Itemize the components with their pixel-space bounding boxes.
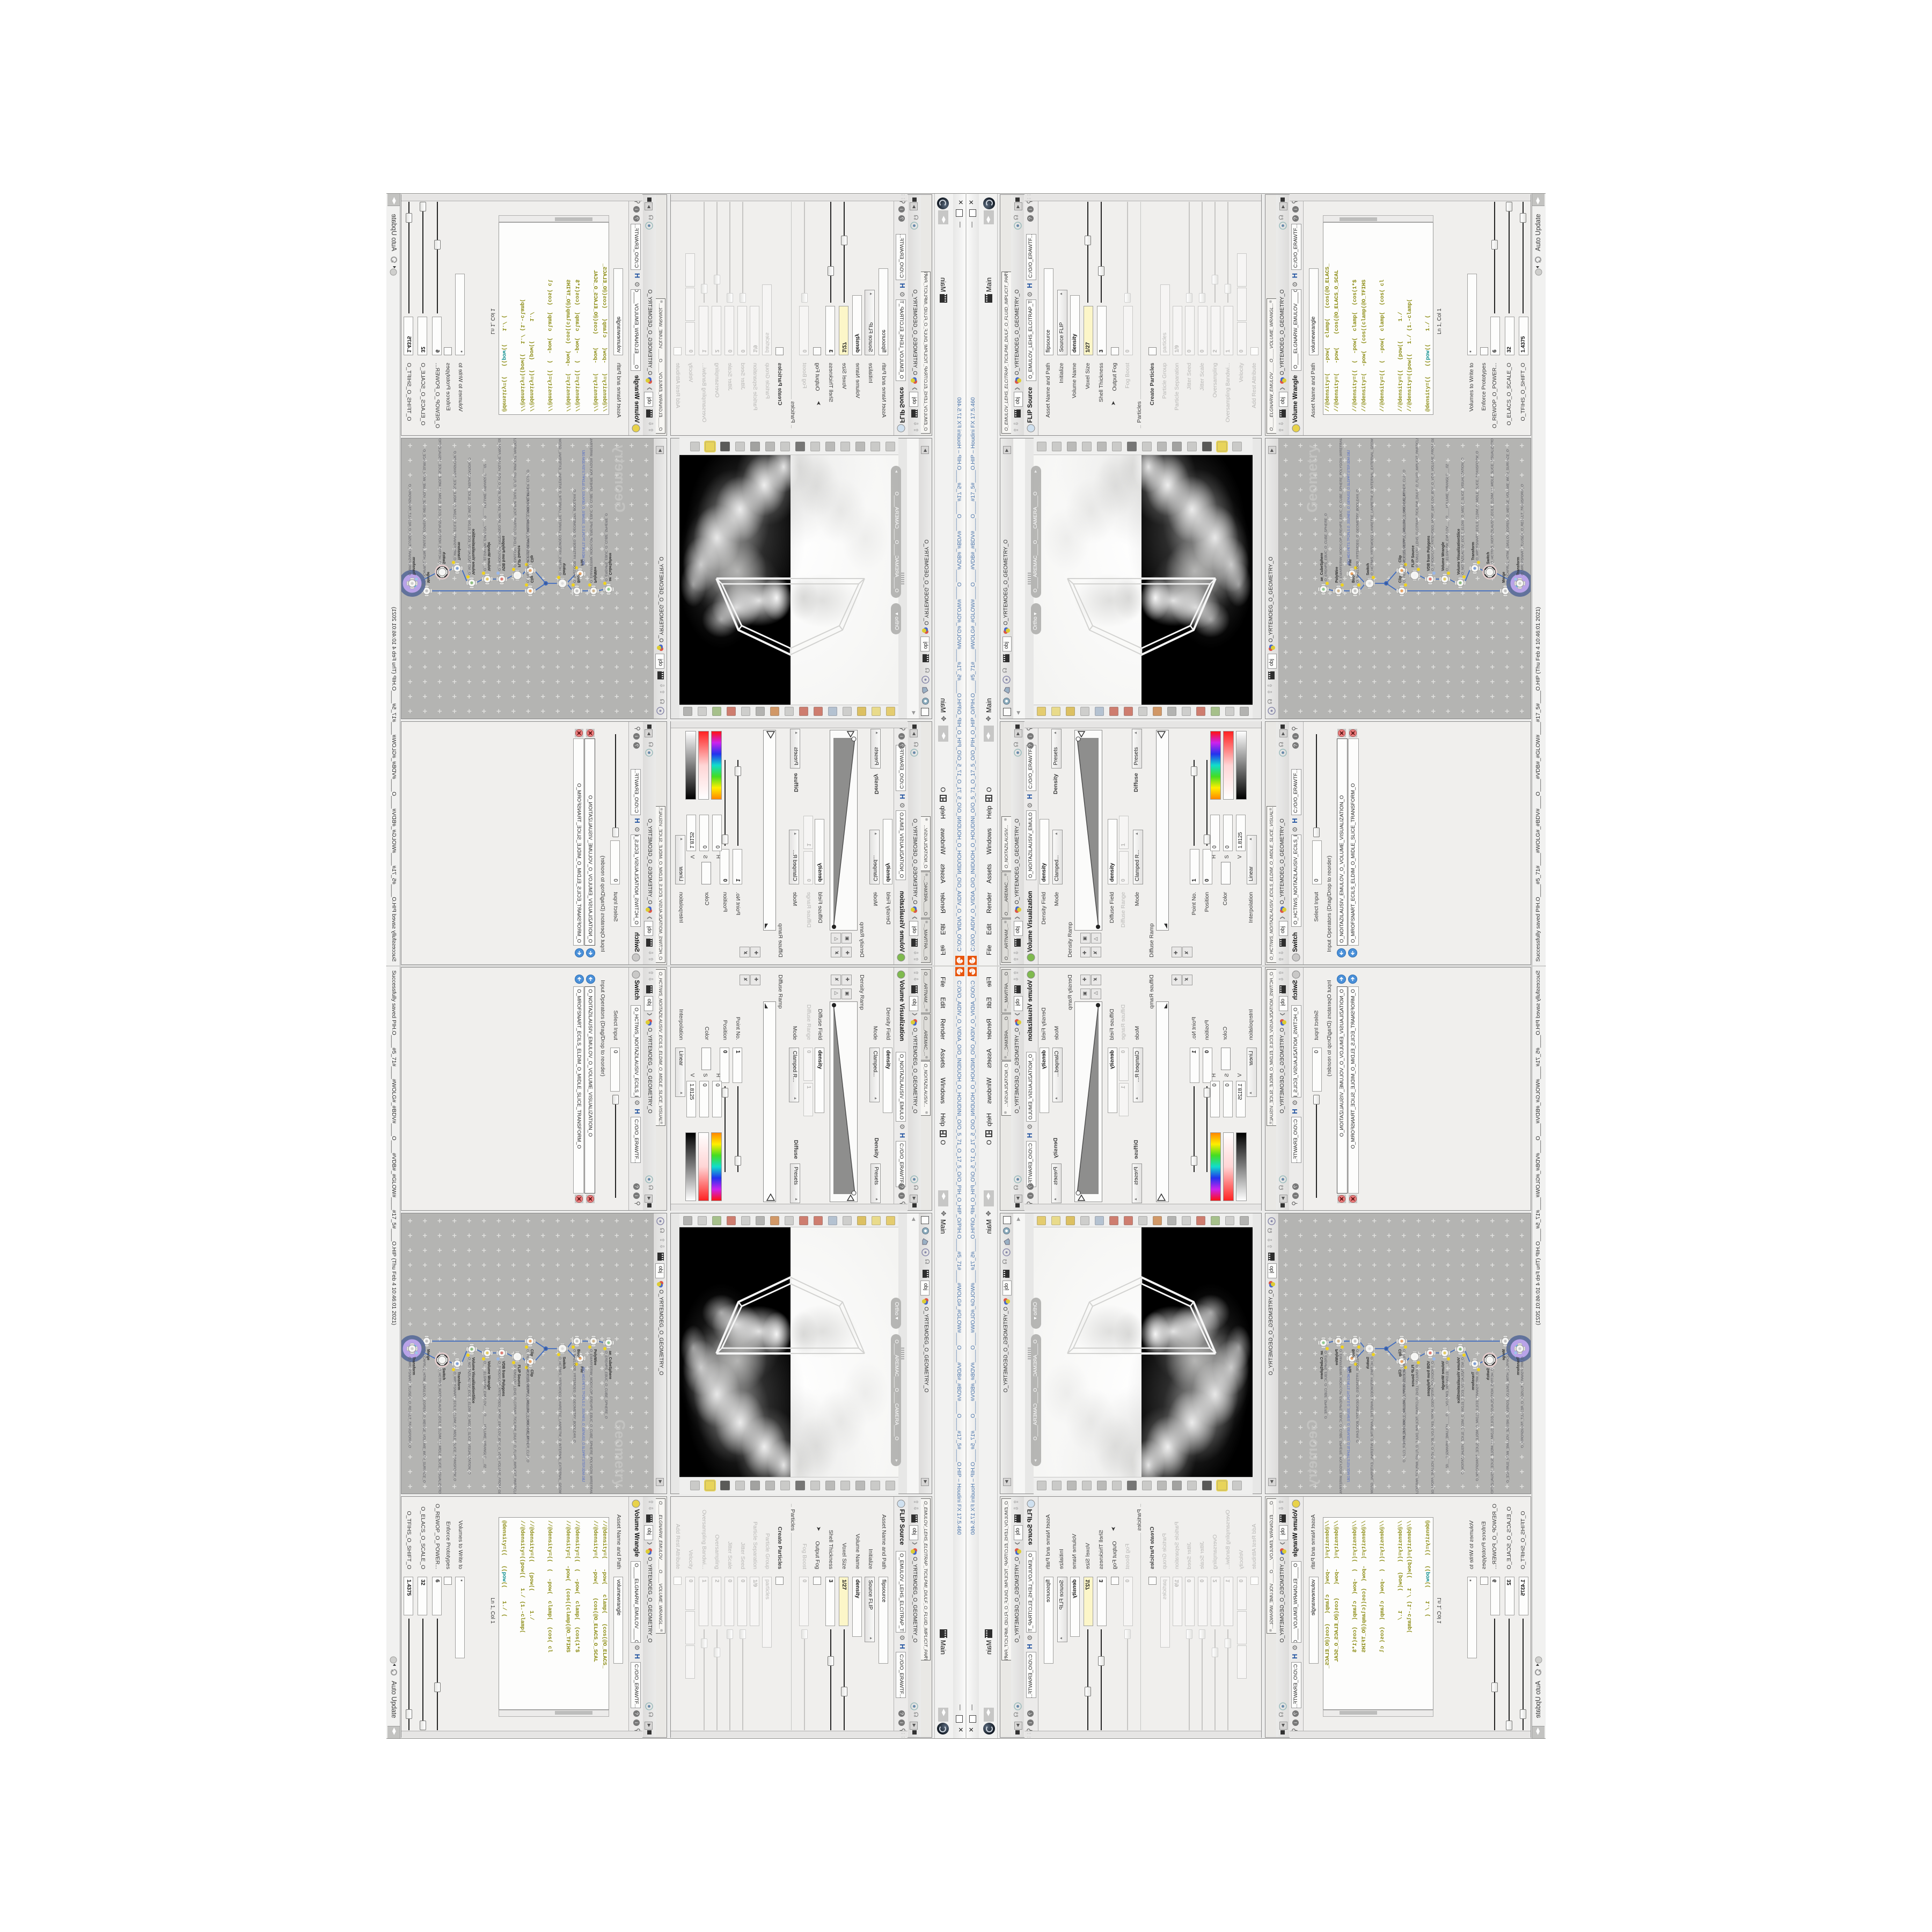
svg-text:O_EREHPS_EBUC_O_CUBE_SPHERE_O: O_EREHPS_EBUC_O_CUBE_SPHERE_O [604,1351,608,1418]
svg-text:O_HCTIWS_NOITAZILAUSIV_ECILS_E: O_HCTIWS_NOITAZILAUSIV_ECILS_ELDIM_O_MID… [438,1368,442,1494]
svg-text:i: i [634,1722,639,1723]
svg-text:FLIP Source: FLIP Source [1411,1365,1415,1387]
svg-text:?: ? [634,217,639,219]
svg-text:FLIP Source: FLIP Source [517,1365,521,1387]
svg-text:PolyWire: PolyWire [593,1349,597,1365]
svg-text:?: ? [899,1712,904,1715]
svg-text:i: i [634,1195,639,1196]
svg-text:O_PILC_REWOL_EMULOV_O_VOLUME_L: O_PILC_REWOL_EMULOV_O_VOLUME_LOWER_CLIP_… [1403,488,1407,583]
svg-text:O_SNOGYLOP_YRTEMOEG_MORF_EMULO: O_SNOGYLOP_YRTEMOEG_MORF_EMULOV_BDV_O_VD… [1431,438,1435,571]
svg-text:?: ? [1028,1185,1033,1188]
svg-text:O_NOITAZILAUSIV_ECILS_ELDIM_O_: O_NOITAZILAUSIV_ECILS_ELDIM_O_MIDLE_SLIC… [467,1357,471,1474]
svg-text:O_EMULOV_LEHS_ELCITRAP_TICILPM: O_EMULOV_LEHS_ELCITRAP_TICILPMI_DIULF_O_… [513,1365,517,1494]
svg-text:O____ELGNARW_EMULOV____O____VO: O____ELGNARW_EMULOV____O____VOLUME_WRANG… [483,1361,487,1468]
svg-text:O_NOITAZILAUSIV_ECILS_ELDIM_O_: O_NOITAZILAUSIV_ECILS_ELDIM_O_MIDLE_SLIC… [1461,458,1465,575]
svg-text:ae_CubeSphere: ae_CubeSphere [1320,1351,1324,1379]
svg-text:O____ELGNARW_EMULOV____O____VO: O____ELGNARW_EMULOV____O____VOLUME_WRANG… [483,464,487,571]
svg-text:Transform: Transform [457,1372,460,1390]
svg-text:?: ? [1293,1712,1298,1715]
svg-text:Volume VisualizationSlice: Volume VisualizationSlice [1457,1357,1461,1403]
svg-text:O_EMARFERIW_NOGYLOP_EREHPS_EBU: O_EMARFERIW_NOGYLOP_EREHPS_EBUC_O_CUBE_S… [1340,438,1343,583]
svg-text:i: i [899,209,904,210]
svg-text:JBO.MD3.PETS.TFCPLS.O_3SUNEG_O: JBO.MD3.PETS.TFCPLS.O_3SUNEG_O_GENUS3_O.… [581,450,584,566]
svg-text:Bool: Bool [1352,1349,1356,1358]
svg-text:O_EREHPS_EBUC_O_CUBE_SPHERE_O: O_EREHPS_EBUC_O_CUBE_SPHERE_O [1324,1351,1328,1418]
svg-text:Bool: Bool [576,1349,580,1358]
svg-text:O_ECAFRUS_HTIW_EMULOV_EGREM_O_: O_ECAFRUS_HTIW_EMULOV_EGREM_O_MERGE_VOLU… [1506,449,1510,583]
svg-text:Clip: Clip [1399,576,1402,583]
svg-text:Bool: Bool [1352,574,1356,583]
svg-text:O____ELGNARW_EMULOV____O____VO: O____ELGNARW_EMULOV____O____VOLUME_WRANG… [1446,464,1450,571]
svg-text:O_HCTIWS_YRTEMOEG_LANRETXE_LAN: O_HCTIWS_YRTEMOEG_LANRETXE_LANRETNI_O_IN… [1371,438,1374,575]
svg-text:i: i [899,1195,904,1196]
svg-text:O_ECAFRUS_HTIW_EMULOV_EGREM_O_: O_ECAFRUS_HTIW_EMULOV_EGREM_O_MERGE_VOLU… [422,449,426,583]
svg-text:O_NOITAZILAUSIV_ECILS_ELDIM_O_: O_NOITAZILAUSIV_ECILS_ELDIM_O_MIDLE_SLIC… [1461,1357,1465,1474]
svg-text:O_MROFSNART_TLUSER_O_RESULT_TR: O_MROFSNART_TLUSER_O_RESULT_TRANSFORM_O [1521,484,1525,575]
svg-text:O_MROFSNART_ECILS_ELDIM_O_MIDL: O_MROFSNART_ECILS_ELDIM_O_MIDLE_SLICE_TR… [453,451,457,560]
svg-text:O_EMARFERIW_NOGYLOP_EREHPS_EBU: O_EMARFERIW_NOGYLOP_EREHPS_EBUC_O_CUBE_S… [1340,1349,1343,1494]
svg-text:?: ? [899,217,904,219]
svg-text:O_MROFSNART_ECILS_ELDIM_O_MIDL: O_MROFSNART_ECILS_ELDIM_O_MIDLE_SLICE_TR… [1476,1372,1480,1481]
svg-text:VDB from Polygons: VDB from Polygons [501,536,505,571]
svg-text:Switch: Switch [442,552,445,564]
svg-text:VDB from Polygons: VDB from Polygons [501,1361,505,1396]
svg-text:i: i [899,1722,904,1723]
svg-text:i: i [634,209,639,210]
svg-text:Clip: Clip [1399,1370,1402,1377]
svg-text:O_MROFSNART_TLUSER_O_RESULT_TR: O_MROFSNART_TLUSER_O_RESULT_TRANSFORM_O [408,1357,412,1448]
svg-text:O_PILC_REWOL_EMULOV_O_VOLUME_L: O_PILC_REWOL_EMULOV_O_VOLUME_LOWER_CLIP_… [526,1349,530,1444]
svg-text:Clip: Clip [1399,555,1402,562]
svg-text:?: ? [634,1185,639,1188]
svg-text:Merge: Merge [1502,1349,1506,1360]
svg-text:O_EREHPS_EBUC_O_CUBE_SPHERE_O: O_EREHPS_EBUC_O_CUBE_SPHERE_O [1324,514,1328,581]
svg-text:Transform: Transform [412,1357,415,1375]
svg-text:O_NAELOOB_YRTEMOEG_O_GEOMETRY_: O_NAELOOB_YRTEMOEG_O_GEOMETRY_BOOLEAN_O [1356,489,1360,583]
svg-text:i: i [1293,209,1298,210]
svg-text:Bool: Bool [576,574,580,583]
svg-text:i: i [1293,1722,1298,1723]
svg-text:Transform: Transform [1472,542,1475,560]
svg-text:i: i [1293,736,1298,737]
svg-text:?: ? [1028,217,1033,219]
svg-text:i: i [899,736,904,737]
svg-text:O____ELGNARW_EMULOV____O____VO: O____ELGNARW_EMULOV____O____VOLUME_WRANG… [1446,1361,1450,1468]
svg-text:O_HCTIWS_NOITAZILAUSIV_ECILS_E: O_HCTIWS_NOITAZILAUSIV_ECILS_ELDIM_O_MID… [1491,1368,1495,1494]
svg-text:Clip: Clip [530,555,533,562]
svg-text:Switch: Switch [1366,563,1370,575]
svg-text:O_HCTIWS_YRTEMOEG_LANRETXE_LAN: O_HCTIWS_YRTEMOEG_LANRETXE_LANRETNI_O_IN… [558,438,562,575]
svg-text:O_HCTIWS_YRTEMOEG_LANRETXE_LAN: O_HCTIWS_YRTEMOEG_LANRETXE_LANRETNI_O_IN… [558,1357,562,1494]
svg-text:Transform: Transform [1517,557,1520,575]
svg-text:O_MROFSNART_TLUSER_O_RESULT_TR: O_MROFSNART_TLUSER_O_RESULT_TRANSFORM_O [1521,1357,1525,1448]
svg-text:Clip: Clip [530,1349,533,1356]
svg-text:O_NAELOOB_YRTEMOEG_O_GEOMETRY_: O_NAELOOB_YRTEMOEG_O_GEOMETRY_BOOLEAN_O [573,489,576,583]
svg-text:Switch: Switch [1487,552,1490,564]
svg-text:O_ECAFRUS_HTIW_EMULOV_EGREM_O_: O_ECAFRUS_HTIW_EMULOV_EGREM_O_MERGE_VOLU… [422,1349,426,1483]
svg-text:?: ? [899,744,904,747]
svg-text:Transform: Transform [412,557,415,575]
svg-text:Volume Wrangle: Volume Wrangle [1441,1361,1445,1390]
svg-text:Clip: Clip [530,576,533,583]
svg-text:JBO.MD3.PETS.TFCPLS.O_3SUNEG_O: JBO.MD3.PETS.TFCPLS.O_3SUNEG_O_GENUS3_O.… [1348,1366,1351,1482]
svg-text:O_EMULOV_LEHS_ELCITRAP_TICILPM: O_EMULOV_LEHS_ELCITRAP_TICILPMI_DIULF_O_… [1416,438,1419,567]
svg-text:O_PILC_REWOL_EMULOV_O_VOLUME_L: O_PILC_REWOL_EMULOV_O_VOLUME_LOWER_CLIP_… [526,488,530,583]
svg-text:O_NOITAZILAUSIV_ECILS_ELDIM_O_: O_NOITAZILAUSIV_ECILS_ELDIM_O_MIDLE_SLIC… [467,458,471,575]
svg-text:Clip: Clip [1399,1349,1402,1356]
svg-text:i: i [1293,1195,1298,1196]
svg-text:Transform: Transform [1517,1357,1520,1375]
svg-text:Switch: Switch [1487,1368,1490,1380]
svg-text:O_HCTIWS_YRTEMOEG_LANRETXE_LAN: O_HCTIWS_YRTEMOEG_LANRETXE_LANRETNI_O_IN… [1371,1357,1374,1494]
svg-text:O_MROFSNART_TLUSER_O_RESULT_TR: O_MROFSNART_TLUSER_O_RESULT_TRANSFORM_O [408,484,412,575]
svg-text:O_EMARFERIW_NOGYLOP_EREHPS_EBU: O_EMARFERIW_NOGYLOP_EREHPS_EBUC_O_CUBE_S… [589,1349,593,1494]
svg-text:i: i [1028,1722,1033,1723]
svg-text:O_HCTIWS_NOITAZILAUSIV_ECILS_E: O_HCTIWS_NOITAZILAUSIV_ECILS_ELDIM_O_MID… [438,438,442,564]
svg-text:i: i [634,736,639,737]
svg-text:ae_CubeSphere: ae_CubeSphere [608,1351,612,1379]
svg-text:Transform: Transform [457,542,460,560]
svg-text:O_ECAFRUS_HTIW_EMULOV_EGREM_O_: O_ECAFRUS_HTIW_EMULOV_EGREM_O_MERGE_VOLU… [1506,1349,1510,1483]
svg-text:Geometry: Geometry [1304,1419,1320,1487]
svg-text:O_SNOGYLOP_YRTEMOEG_MORF_EMULO: O_SNOGYLOP_YRTEMOEG_MORF_EMULOV_BDV_O_VD… [497,1361,501,1494]
svg-text:O_HCTIWS_NOITAZILAUSIV_ECILS_E: O_HCTIWS_NOITAZILAUSIV_ECILS_ELDIM_O_MID… [1491,438,1495,564]
svg-text:O_EMARFERIW_NOGYLOP_EREHPS_EBU: O_EMARFERIW_NOGYLOP_EREHPS_EBUC_O_CUBE_S… [589,438,593,583]
svg-text:Volume VisualizationSlice: Volume VisualizationSlice [1457,529,1461,575]
svg-text:VDB from Polygons: VDB from Polygons [1427,536,1431,571]
svg-text:?: ? [634,1712,639,1715]
svg-text:Volume Wrangle: Volume Wrangle [487,542,491,571]
svg-text:Merge: Merge [426,1349,430,1360]
svg-text:O_NAELOOB_YRTEMOEG_O_GEOMETRY_: O_NAELOOB_YRTEMOEG_O_GEOMETRY_BOOLEAN_O [1356,1349,1360,1443]
svg-text:?: ? [1293,1185,1298,1188]
svg-text:FLIP Source: FLIP Source [1411,545,1415,567]
svg-text:?: ? [1293,744,1298,747]
svg-text:?: ? [1028,744,1033,747]
svg-text:Volume Wrangle: Volume Wrangle [1441,542,1445,571]
svg-text:Volume VisualizationSlice: Volume VisualizationSlice [471,1357,475,1403]
svg-text:O_NAELOOB_YRTEMOEG_O_GEOMETRY_: O_NAELOOB_YRTEMOEG_O_GEOMETRY_BOOLEAN_O [573,1349,576,1443]
svg-text:Geometry: Geometry [612,445,628,513]
svg-text:PolyWire: PolyWire [1335,1349,1339,1365]
svg-text:Clip: Clip [530,1370,533,1377]
svg-text:O_MROFSNART_ECILS_ELDIM_O_MIDL: O_MROFSNART_ECILS_ELDIM_O_MIDLE_SLICE_TR… [453,1372,457,1481]
svg-text:Switch: Switch [562,1357,566,1369]
svg-text:O_EMULOV_LEHS_ELCITRAP_TICILPM: O_EMULOV_LEHS_ELCITRAP_TICILPMI_DIULF_O_… [513,438,517,567]
svg-text:i: i [1028,736,1033,737]
svg-text:O_SNOGYLOP_YRTEMOEG_MORF_EMULO: O_SNOGYLOP_YRTEMOEG_MORF_EMULOV_BDV_O_VD… [1431,1361,1435,1494]
svg-text:?: ? [1293,217,1298,219]
svg-text:ae_CubeSphere: ae_CubeSphere [1320,553,1324,581]
svg-text:ae_CubeSphere: ae_CubeSphere [608,553,612,581]
svg-text:VDB from Polygons: VDB from Polygons [1427,1361,1431,1396]
svg-text:Merge: Merge [426,572,430,583]
svg-text:Geometry: Geometry [612,1419,628,1487]
svg-text:i: i [1028,1195,1033,1196]
svg-text:i: i [1028,209,1033,210]
svg-text:Switch: Switch [442,1368,445,1380]
svg-text:O_SNOGYLOP_YRTEMOEG_MORF_EMULO: O_SNOGYLOP_YRTEMOEG_MORF_EMULOV_BDV_O_VD… [497,438,501,571]
svg-text:PolyWire: PolyWire [1335,567,1339,583]
svg-text:JBO.MD3.PETS.TFCPLS.O_3SUNEG_O: JBO.MD3.PETS.TFCPLS.O_3SUNEG_O_GENUS3_O.… [581,1366,584,1482]
svg-text:PolyWire: PolyWire [593,567,597,583]
svg-text:?: ? [1028,1712,1033,1715]
svg-text:Switch: Switch [562,563,566,575]
svg-text:?: ? [634,744,639,747]
svg-text:O_MROFSNART_ECILS_ELDIM_O_MIDL: O_MROFSNART_ECILS_ELDIM_O_MIDLE_SLICE_TR… [1476,451,1480,560]
svg-text:Volume VisualizationSlice: Volume VisualizationSlice [471,529,475,575]
svg-text:O_PILC_REWOL_EMULOV_O_VOLUME_L: O_PILC_REWOL_EMULOV_O_VOLUME_LOWER_CLIP_… [1403,1349,1407,1444]
svg-text:?: ? [899,1185,904,1188]
svg-text:O_EREHPS_EBUC_O_CUBE_SPHERE_O: O_EREHPS_EBUC_O_CUBE_SPHERE_O [604,514,608,581]
svg-text:Geometry: Geometry [1304,445,1320,513]
svg-text:JBO.MD3.PETS.TFCPLS.O_3SUNEG_O: JBO.MD3.PETS.TFCPLS.O_3SUNEG_O_GENUS3_O.… [1348,450,1351,566]
svg-text:FLIP Source: FLIP Source [517,545,521,567]
svg-text:O_EMULOV_LEHS_ELCITRAP_TICILPM: O_EMULOV_LEHS_ELCITRAP_TICILPMI_DIULF_O_… [1416,1365,1419,1494]
svg-text:Switch: Switch [1366,1357,1370,1369]
svg-text:Merge: Merge [1502,572,1506,583]
svg-text:Volume Wrangle: Volume Wrangle [487,1361,491,1390]
svg-text:Transform: Transform [1472,1372,1475,1390]
